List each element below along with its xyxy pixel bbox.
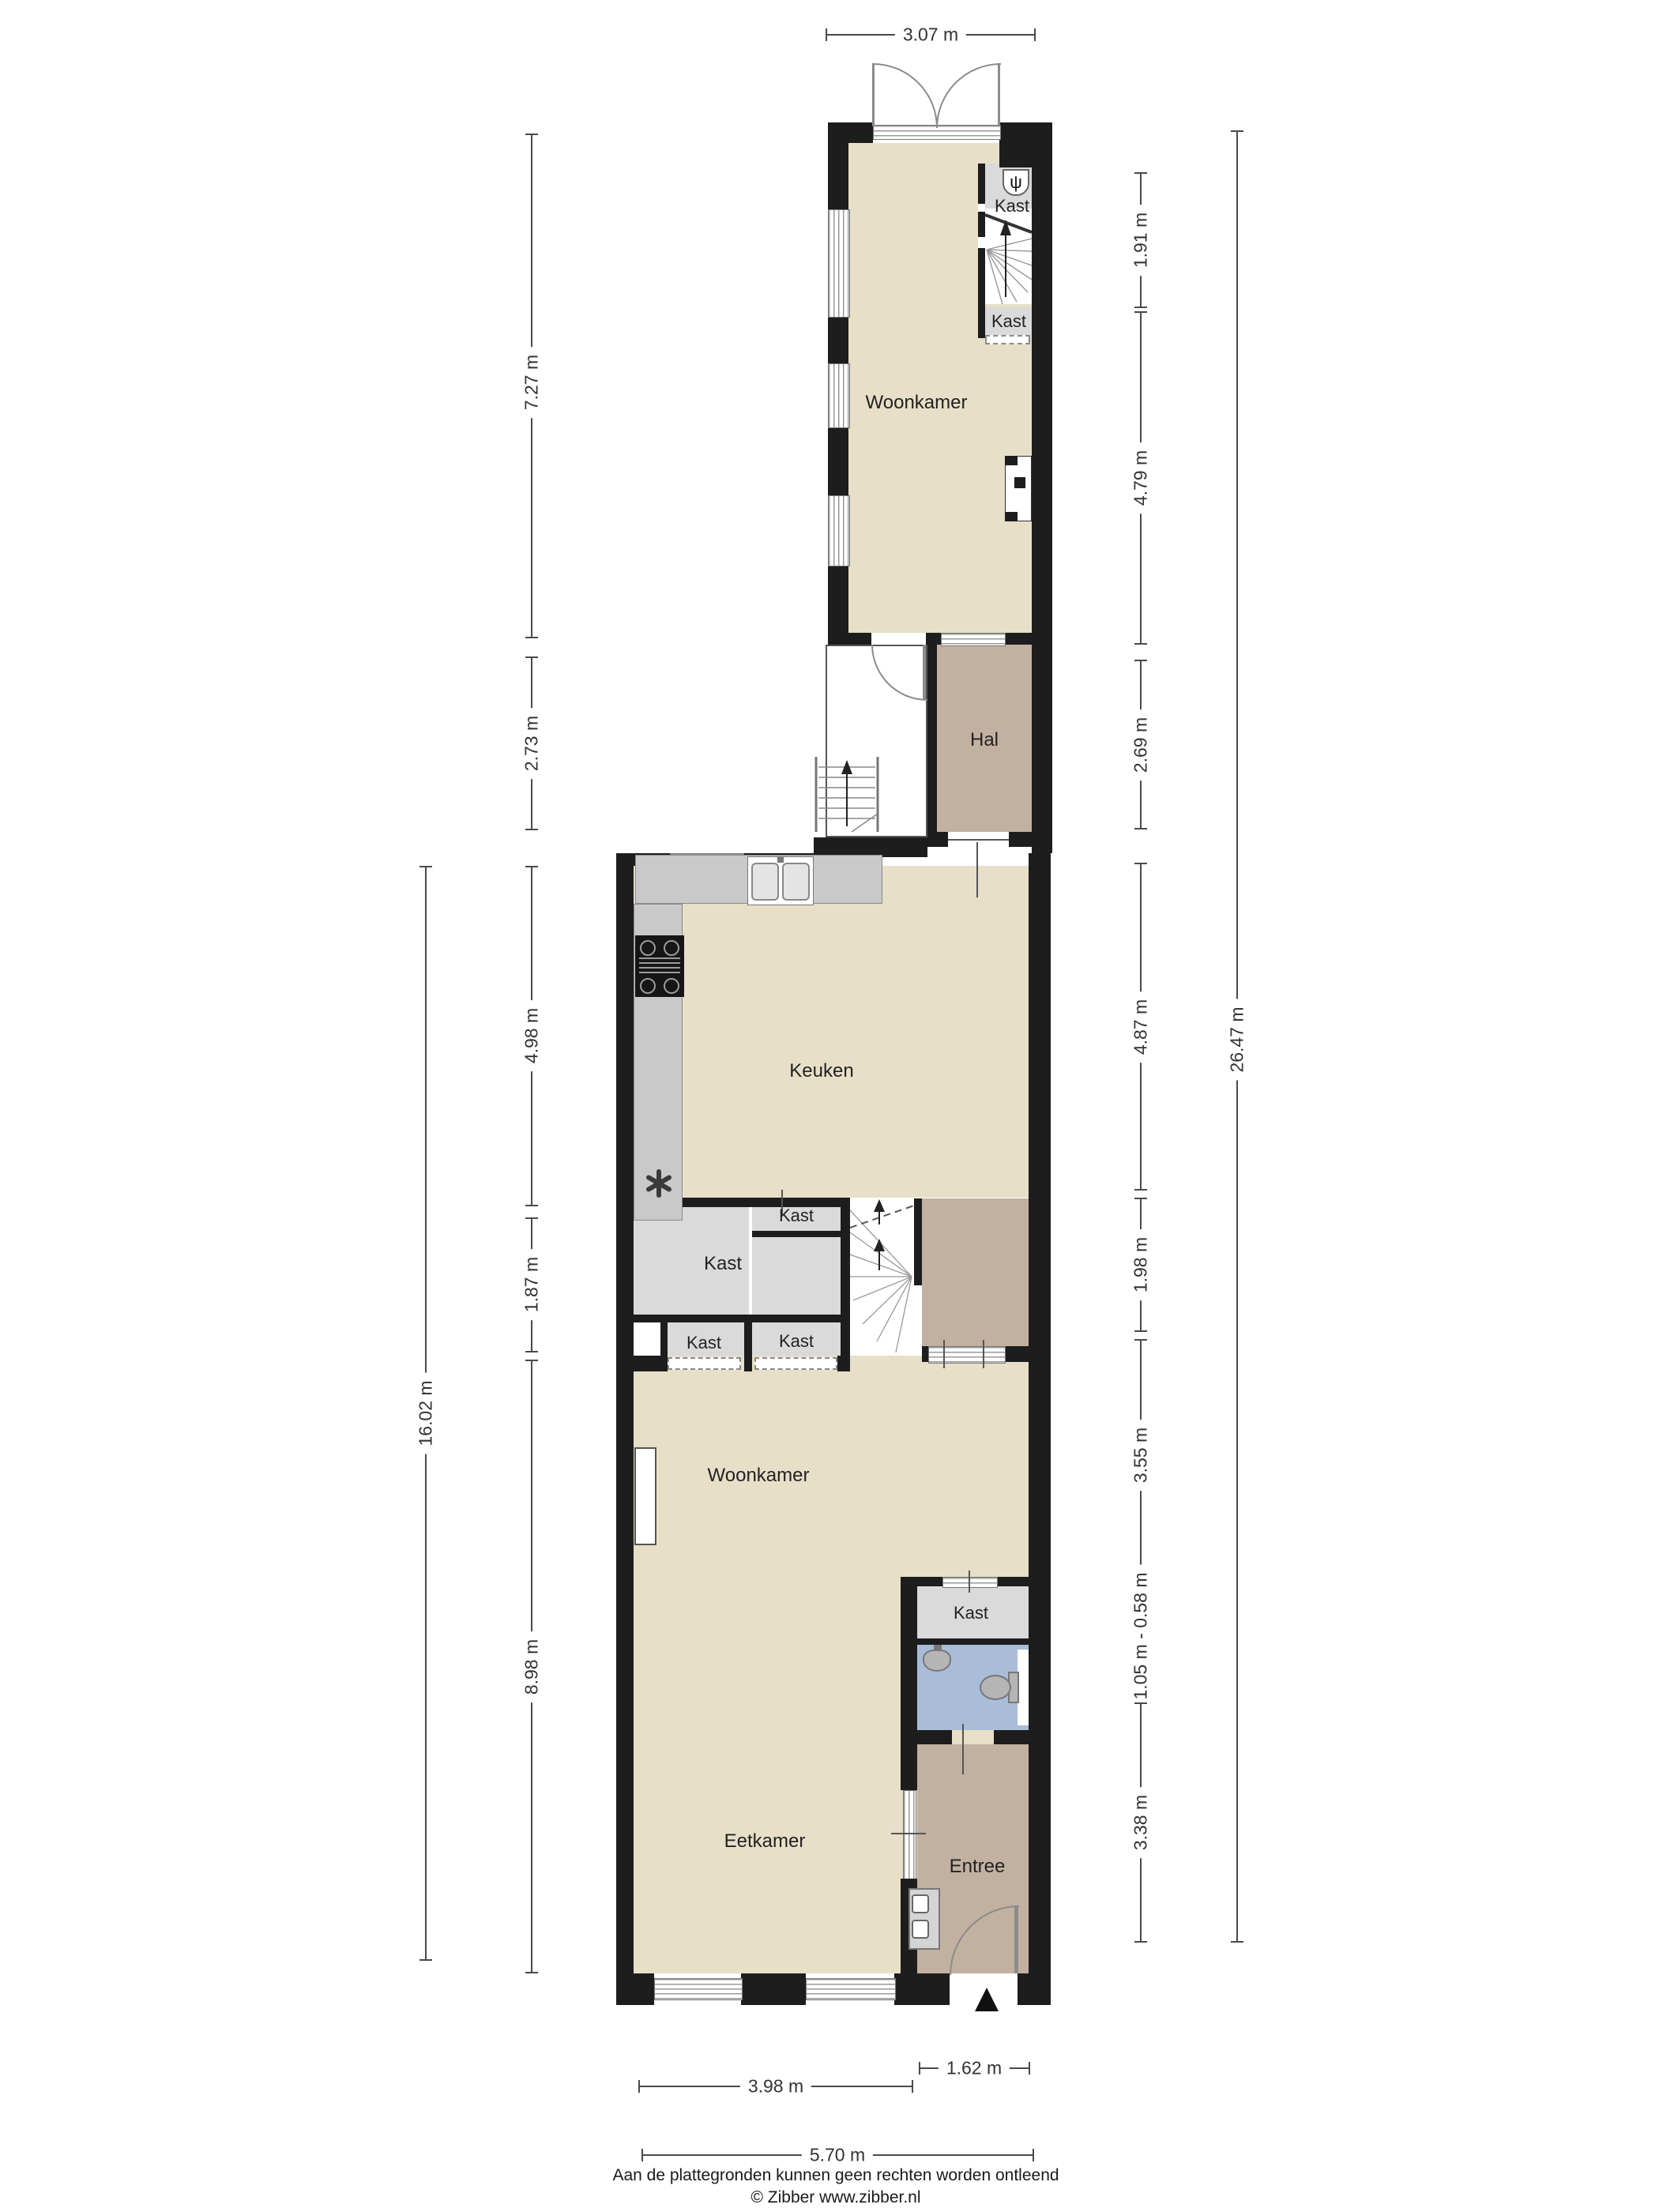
- wall: [901, 1879, 917, 1888]
- dimension-label: 2.73 m: [521, 708, 543, 779]
- wall: [1009, 832, 1052, 847]
- door-leaf: [998, 63, 1000, 126]
- burner: [640, 940, 656, 956]
- floor-plan: ψ Woonkamer Hal Keuken Woonkamer Eetkame…: [0, 0, 1659, 2212]
- stove-grill: [639, 957, 680, 975]
- sink-basin: [751, 863, 779, 901]
- burner: [664, 940, 679, 956]
- radiator: [634, 1447, 656, 1545]
- room-label-woonkamer-upper: Woonkamer: [866, 392, 968, 414]
- window: [806, 1978, 896, 2000]
- wall: [744, 1356, 752, 1371]
- disclaimer-text: Aan de plattegronden kunnen geen rechten…: [612, 2166, 1059, 2185]
- bath-tap: [934, 1645, 942, 1651]
- dimension-label: 16.02 m: [416, 1372, 437, 1454]
- fan-icon: [643, 1168, 675, 1199]
- room-label-kast: Kast: [991, 311, 1026, 332]
- glazing-tick: [891, 1833, 926, 1834]
- closet-front-dashed: [985, 335, 1030, 344]
- wall: [1005, 512, 1018, 521]
- bath-sink: [923, 1650, 951, 1672]
- wall: [1029, 853, 1051, 2005]
- dimension-label: 4.87 m: [1130, 991, 1152, 1063]
- wall: [994, 1730, 1029, 1744]
- window: [941, 633, 1006, 646]
- dimension-label: 1.05 m - 0.58 m: [1130, 1564, 1152, 1707]
- wall: [901, 1888, 908, 1951]
- wall: [922, 1346, 928, 1362]
- wall: [837, 1356, 850, 1371]
- meter: [912, 1920, 929, 1939]
- dimension-label: 1.91 m: [1130, 205, 1152, 276]
- wall: [901, 1950, 917, 1973]
- stairs-middle: [850, 1198, 914, 1356]
- bathroom-shaft: [1018, 1650, 1029, 1725]
- room-label-kast: Kast: [779, 1206, 814, 1226]
- wall: [978, 164, 985, 338]
- wall: [894, 1973, 950, 2005]
- glazing-tick: [943, 1340, 945, 1368]
- room-label-kast: Kast: [779, 1331, 814, 1352]
- north-arrow-icon: [975, 1988, 999, 2011]
- wall: [634, 1356, 660, 1371]
- door-marker: [962, 1724, 964, 1774]
- wall: [841, 1198, 850, 1371]
- room-hall-middle: [922, 1198, 1029, 1346]
- door-arc: [873, 63, 938, 128]
- door-gap: [978, 204, 985, 212]
- wall: [744, 1321, 752, 1356]
- wall: [828, 427, 848, 495]
- wall: [996, 1577, 1029, 1586]
- door-leaf: [923, 645, 926, 700]
- door-leaf: [872, 63, 875, 126]
- glazed-partition: [903, 1790, 916, 1880]
- burner: [640, 978, 656, 994]
- dimension-label: 2.69 m: [1130, 709, 1152, 781]
- wall: [828, 316, 848, 363]
- wall: [828, 633, 871, 645]
- dimension-label: 3.38 m: [1130, 1787, 1152, 1858]
- wall: [1004, 633, 1032, 645]
- window: [828, 209, 850, 318]
- toilet-bowl: [980, 1675, 1011, 1700]
- boiler-icon: ψ: [1010, 172, 1022, 192]
- wall: [1004, 1346, 1029, 1362]
- sink-basin: [782, 863, 810, 901]
- room-label-woonkamer-lower: Woonkamer: [708, 1465, 810, 1487]
- wall: [660, 1321, 668, 1371]
- wall: [927, 645, 937, 832]
- dimension-label: 1.62 m: [939, 2058, 1010, 2079]
- passage-line: [948, 839, 1009, 841]
- wall: [828, 122, 848, 209]
- dimension-label: 4.79 m: [1130, 442, 1152, 513]
- dimension-label: 8.98 m: [521, 1631, 543, 1702]
- burner: [664, 978, 679, 994]
- wall: [901, 1577, 917, 1790]
- room-keuken: [634, 866, 1029, 1198]
- closet-front-dashed: [754, 1357, 837, 1370]
- stairs-landing: [814, 757, 880, 832]
- room-label-keuken: Keuken: [789, 1060, 853, 1082]
- room-label-eetkamer: Eetkamer: [724, 1830, 806, 1853]
- dimension-label: 3.55 m: [1130, 1420, 1152, 1491]
- wall: [752, 1231, 841, 1237]
- wall: [616, 1973, 654, 2005]
- door-tick: [969, 1571, 970, 1593]
- sink-tap: [777, 857, 784, 863]
- dimension-label: 26.47 m: [1227, 999, 1248, 1080]
- wall: [1018, 1973, 1051, 2005]
- window: [828, 363, 850, 428]
- wall: [926, 633, 941, 645]
- room-label-entree: Entree: [950, 1856, 1006, 1878]
- boiler-box: ψ: [1003, 169, 1029, 196]
- wall: [1014, 477, 1025, 488]
- room-label-hal: Hal: [970, 729, 999, 751]
- dimension-label: 1.87 m: [521, 1249, 543, 1320]
- copyright-text: © Zibber www.zibber.nl: [750, 2188, 920, 2207]
- dimension-label: 1.98 m: [1130, 1229, 1152, 1300]
- dimension-label: 5.70 m: [802, 2145, 873, 2166]
- wall: [901, 1730, 952, 1744]
- window: [828, 495, 850, 566]
- door-marker: [976, 842, 978, 897]
- dimension-label: 7.27 m: [521, 347, 543, 418]
- wall: [927, 832, 948, 847]
- room-label-kast: Kast: [954, 1603, 988, 1623]
- window: [654, 1978, 743, 2000]
- room-label-kast: Kast: [687, 1333, 721, 1353]
- room-label-kast: Kast: [704, 1253, 742, 1275]
- wall: [1032, 122, 1052, 853]
- closet-doors: [942, 1577, 998, 1588]
- wall: [914, 1198, 922, 1285]
- front-door-leaf: [1014, 1905, 1018, 1973]
- wall: [616, 853, 634, 2005]
- dimension-label: 3.07 m: [895, 24, 966, 46]
- stairs-upper: [985, 209, 1032, 304]
- meter: [912, 1894, 929, 1913]
- window: [928, 1346, 1006, 1364]
- dimension-label: 3.98 m: [740, 2076, 811, 2097]
- door-gap: [978, 237, 985, 248]
- wall: [917, 1638, 1029, 1645]
- glazing-tick: [983, 1340, 984, 1368]
- room-label-kast: Kast: [995, 196, 1029, 216]
- closet-front-dashed: [668, 1357, 741, 1370]
- door-arc: [936, 63, 1001, 128]
- wall: [1005, 456, 1018, 465]
- wall: [741, 1973, 806, 2005]
- dimension-label: 4.98 m: [521, 1000, 543, 1071]
